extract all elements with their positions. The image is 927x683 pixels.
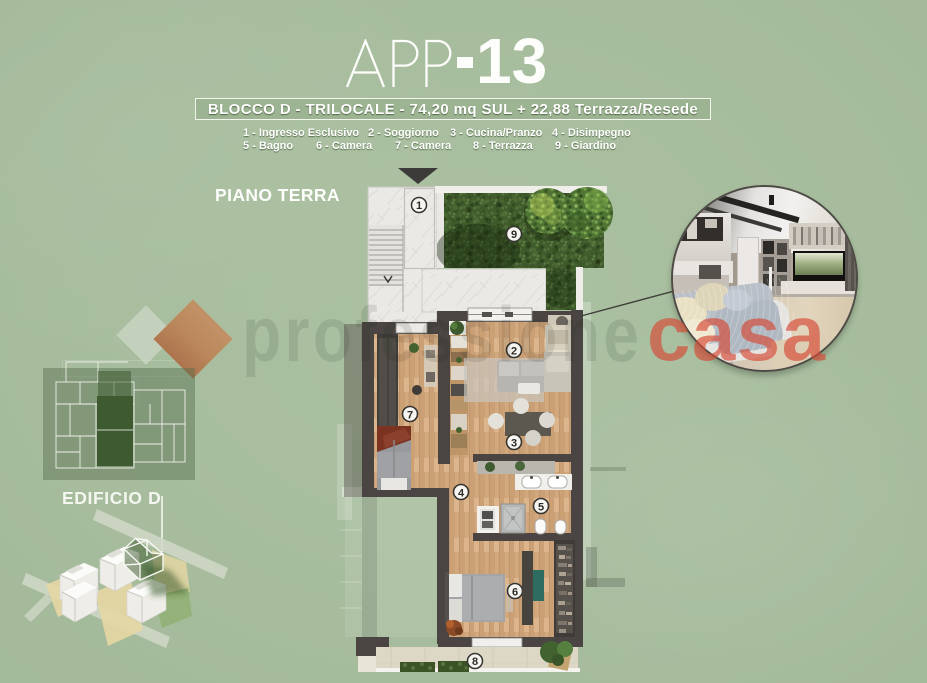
svg-text:4: 4 (458, 488, 465, 500)
svg-text:6: 6 (512, 587, 518, 599)
svg-text:1: 1 (416, 200, 422, 212)
svg-text:5: 5 (538, 502, 544, 514)
svg-text:8: 8 (472, 656, 478, 668)
svg-text:EDIFICIO D: EDIFICIO D (62, 488, 161, 508)
svg-text:9: 9 (511, 229, 517, 241)
svg-text:7: 7 (407, 410, 413, 422)
svg-text:3: 3 (511, 438, 517, 450)
